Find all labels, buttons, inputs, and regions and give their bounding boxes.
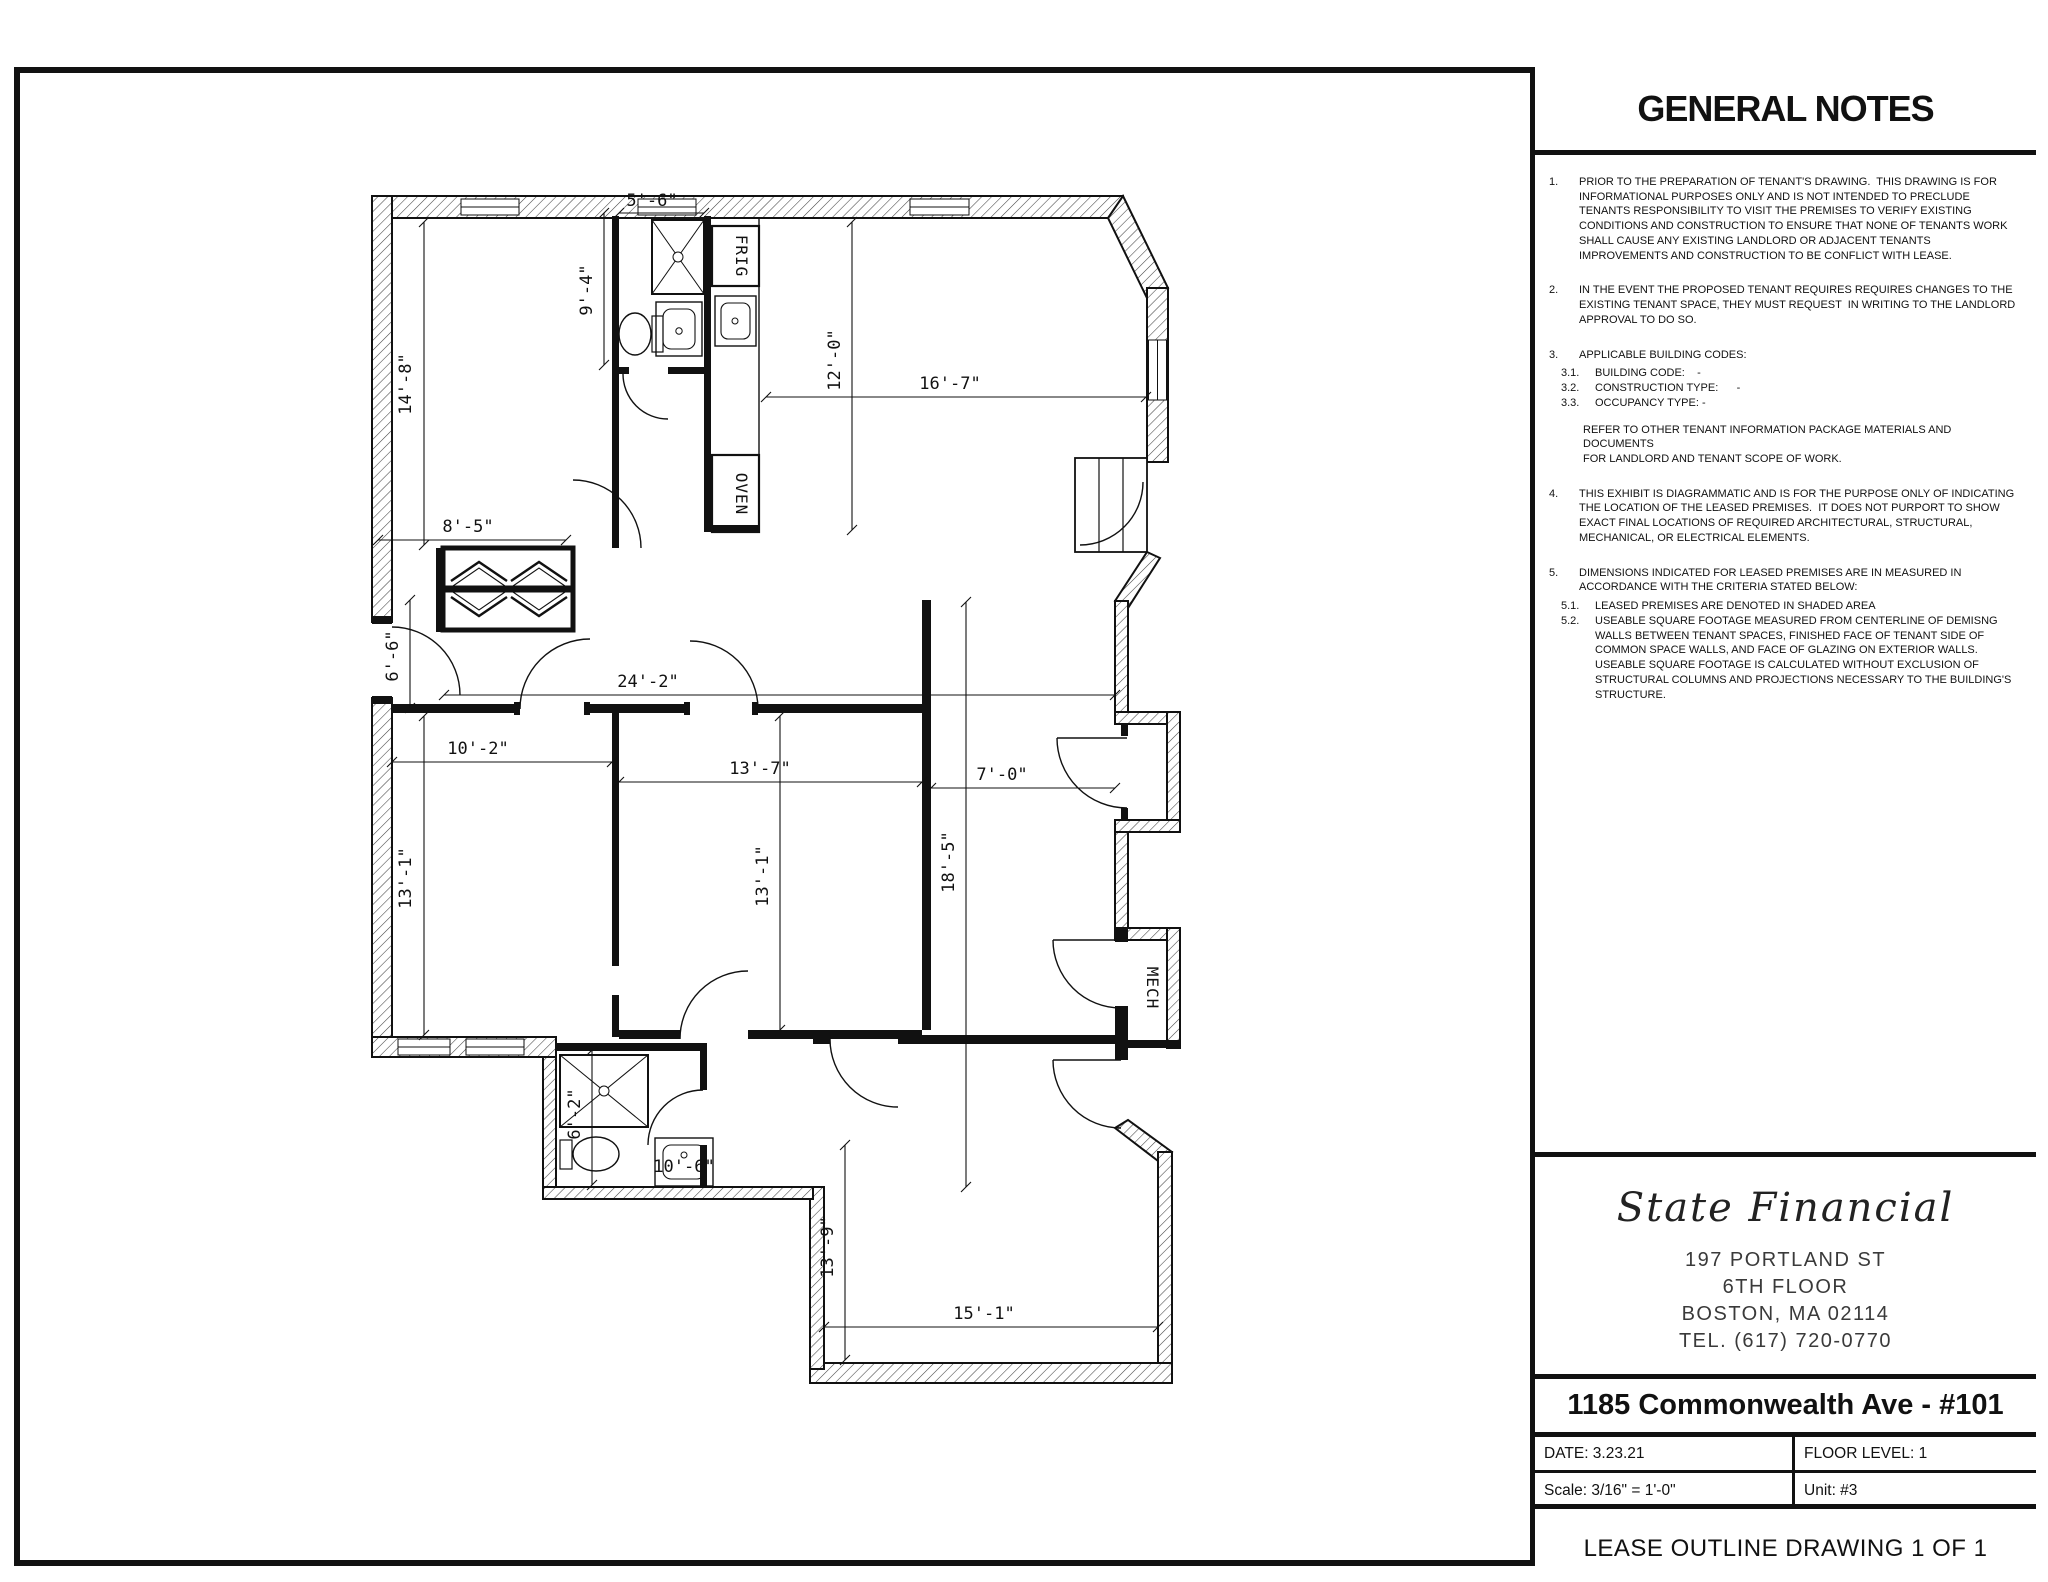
company-name: State Financial xyxy=(1535,1185,2036,1231)
floor-level-cell: FLOOR LEVEL: 1 xyxy=(1795,1437,2036,1473)
note-subitems: 5.1.LEASED PREMISES ARE DENOTED IN SHADE… xyxy=(1549,599,2026,702)
svg-text:6'-2": 6'-2" xyxy=(565,1088,585,1139)
note-item: 1. PRIOR TO THE PREPARATION OF TENANT'S … xyxy=(1549,175,2026,263)
address-line: 6TH FLOOR xyxy=(1535,1274,2036,1301)
svg-text:18'-5": 18'-5" xyxy=(939,831,959,892)
svg-text:10'-2": 10'-2" xyxy=(447,739,508,759)
address-line: 197 PORTLAND ST xyxy=(1535,1247,2036,1274)
svg-text:16'-7": 16'-7" xyxy=(919,374,980,394)
date-cell: DATE: 3.23.21 xyxy=(1535,1437,1795,1473)
dim-bedroom2-width: 10'-2" xyxy=(387,739,617,767)
unit-cell: Unit: #3 xyxy=(1795,1473,2036,1509)
door-arc-bath2 xyxy=(648,1090,703,1145)
door-arc-entry xyxy=(1057,738,1127,808)
drawing-title-box: LEASE OUTLINE DRAWING 1 OF 1 xyxy=(1535,1509,2036,1582)
svg-text:6'-6": 6'-6" xyxy=(383,630,403,681)
svg-text:13'-9": 13'-9" xyxy=(818,1216,838,1277)
stair-landing xyxy=(1075,458,1147,552)
dim-entry-width: 7'-0" xyxy=(926,765,1120,793)
oven-label: OVEN xyxy=(732,473,751,516)
dim-corridor-depth: 18'-5" xyxy=(939,597,971,1192)
frig-label: FRIG xyxy=(732,235,751,278)
svg-text:8'-5": 8'-5" xyxy=(442,517,493,537)
svg-text:7'-0": 7'-0" xyxy=(976,765,1027,785)
sink-kitchen xyxy=(715,296,756,346)
door-arc-rear xyxy=(1053,1060,1121,1128)
dim-closet-width: 8'-5" xyxy=(373,517,571,545)
dim-kitchen-depth: 12'-0" xyxy=(825,217,857,535)
door-arc-closet xyxy=(573,480,641,548)
door-arc-bath1 xyxy=(623,374,668,419)
dim-bath1-depth: 9'-4" xyxy=(577,208,609,370)
drawing-sheet: 14'-8" 5'-6" 9'-4" 12'-0" 16'-7" 8'-5" xyxy=(0,0,2048,1582)
dim-bath2-width: 10'-6" xyxy=(653,1157,714,1177)
dim-bath2-depth: 6'-2" xyxy=(565,1045,597,1190)
door-arc-bedroom3 xyxy=(690,641,758,709)
address-line: TEL. (617) 720-0770 xyxy=(1535,1328,2036,1355)
note-item: 2. IN THE EVENT THE PROPOSED TENANT REQU… xyxy=(1549,283,2026,327)
scale-cell: Scale: 3/16" = 1'-0" xyxy=(1535,1473,1795,1509)
company-address: 197 PORTLAND ST 6TH FLOOR BOSTON, MA 021… xyxy=(1535,1247,2036,1355)
dim-bedroom1-depth: 14'-8" xyxy=(396,217,429,550)
dim-bedroom4-width: 15'-1" xyxy=(819,1304,1163,1332)
svg-text:14'-8": 14'-8" xyxy=(396,353,416,414)
dim-bedroom3-width: 13'-7" xyxy=(614,759,927,787)
note-item: 5. DIMENSIONS INDICATED FOR LEASED PREMI… xyxy=(1549,566,2026,595)
svg-text:13'-1": 13'-1" xyxy=(753,845,773,906)
address-line: BOSTON, MA 02114 xyxy=(1535,1301,2036,1328)
svg-text:13'-7": 13'-7" xyxy=(729,759,790,779)
note-subitems: 3.1.BUILDING CODE: - 3.2.CONSTRUCTION TY… xyxy=(1549,366,2026,410)
exterior-walls xyxy=(372,196,1180,1383)
dim-bedroom2-depth: 13'-1" xyxy=(396,711,429,1040)
svg-text:5'-6": 5'-6" xyxy=(626,191,677,211)
svg-text:10'-6": 10'-6" xyxy=(653,1157,714,1177)
company-block: State Financial 197 PORTLAND ST 6TH FLOO… xyxy=(1535,1185,2036,1379)
door-arc-bedroom2 xyxy=(520,639,590,709)
toilet-2 xyxy=(560,1137,619,1171)
drawing-title: LEASE OUTLINE DRAWING 1 OF 1 xyxy=(1584,1535,1988,1563)
general-notes-header: GENERAL NOTES xyxy=(1535,67,2036,155)
svg-text:9'-4": 9'-4" xyxy=(577,264,597,315)
info-grid: DATE: 3.23.21 FLOOR LEVEL: 1 Scale: 3/16… xyxy=(1535,1437,2036,1509)
project-title-box: 1185 Commonwealth Ave - #101 xyxy=(1535,1379,2036,1437)
general-notes-title: GENERAL NOTES xyxy=(1637,88,1933,130)
title-block-panel: GENERAL NOTES 1. PRIOR TO THE PREPARATIO… xyxy=(1530,67,2036,1566)
note-extra: REFER TO OTHER TENANT INFORMATION PACKAG… xyxy=(1583,423,2026,467)
svg-text:13'-1": 13'-1" xyxy=(396,847,416,908)
note-item: 4. THIS EXHIBIT IS DIAGRAMMATIC AND IS F… xyxy=(1549,487,2026,546)
note-item: 3. APPLICABLE BUILDING CODES: xyxy=(1549,348,2026,363)
door-arc-bedroom3-lower xyxy=(680,971,748,1039)
svg-text:24'-2": 24'-2" xyxy=(617,672,678,692)
door-arc-mech xyxy=(1053,940,1121,1008)
dim-hallway-length: 24'-2" xyxy=(439,672,1120,700)
shower-1 xyxy=(652,220,704,294)
door-arc-bedroom4 xyxy=(830,1039,898,1107)
project-title: 1185 Commonwealth Ave - #101 xyxy=(1567,1389,2003,1422)
dim-living-width: 16'-7" xyxy=(761,374,1151,402)
mech-label: MECH xyxy=(1143,967,1162,1010)
general-notes-body: 1. PRIOR TO THE PREPARATION OF TENANT'S … xyxy=(1535,155,2036,1157)
svg-text:12'-0": 12'-0" xyxy=(825,329,845,390)
svg-text:15'-1": 15'-1" xyxy=(953,1304,1014,1324)
closets xyxy=(443,548,573,630)
